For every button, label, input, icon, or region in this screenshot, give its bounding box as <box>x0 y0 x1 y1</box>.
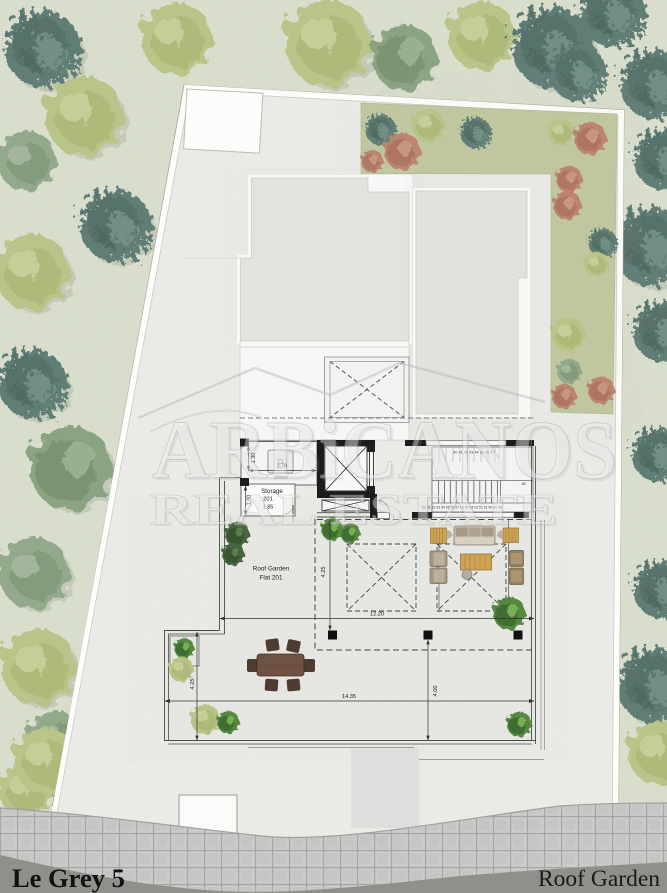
svg-text:12.20: 12.20 <box>370 612 384 618</box>
svg-text:Roof Garden: Roof Garden <box>538 866 660 892</box>
svg-text:14.35: 14.35 <box>342 694 356 700</box>
svg-text:Flat 201: Flat 201 <box>259 575 283 582</box>
svg-text:4.25: 4.25 <box>190 679 196 690</box>
svg-text:Roof Garden: Roof Garden <box>253 566 290 573</box>
svg-text:ARBiCANOS: ARBiCANOS <box>152 404 617 497</box>
svg-text:Le Grey 5: Le Grey 5 <box>12 863 125 893</box>
svg-text:4.25: 4.25 <box>321 567 327 578</box>
svg-text:4.00: 4.00 <box>433 686 439 697</box>
svg-text:REAL ESTATE: REAL ESTATE <box>150 485 558 534</box>
